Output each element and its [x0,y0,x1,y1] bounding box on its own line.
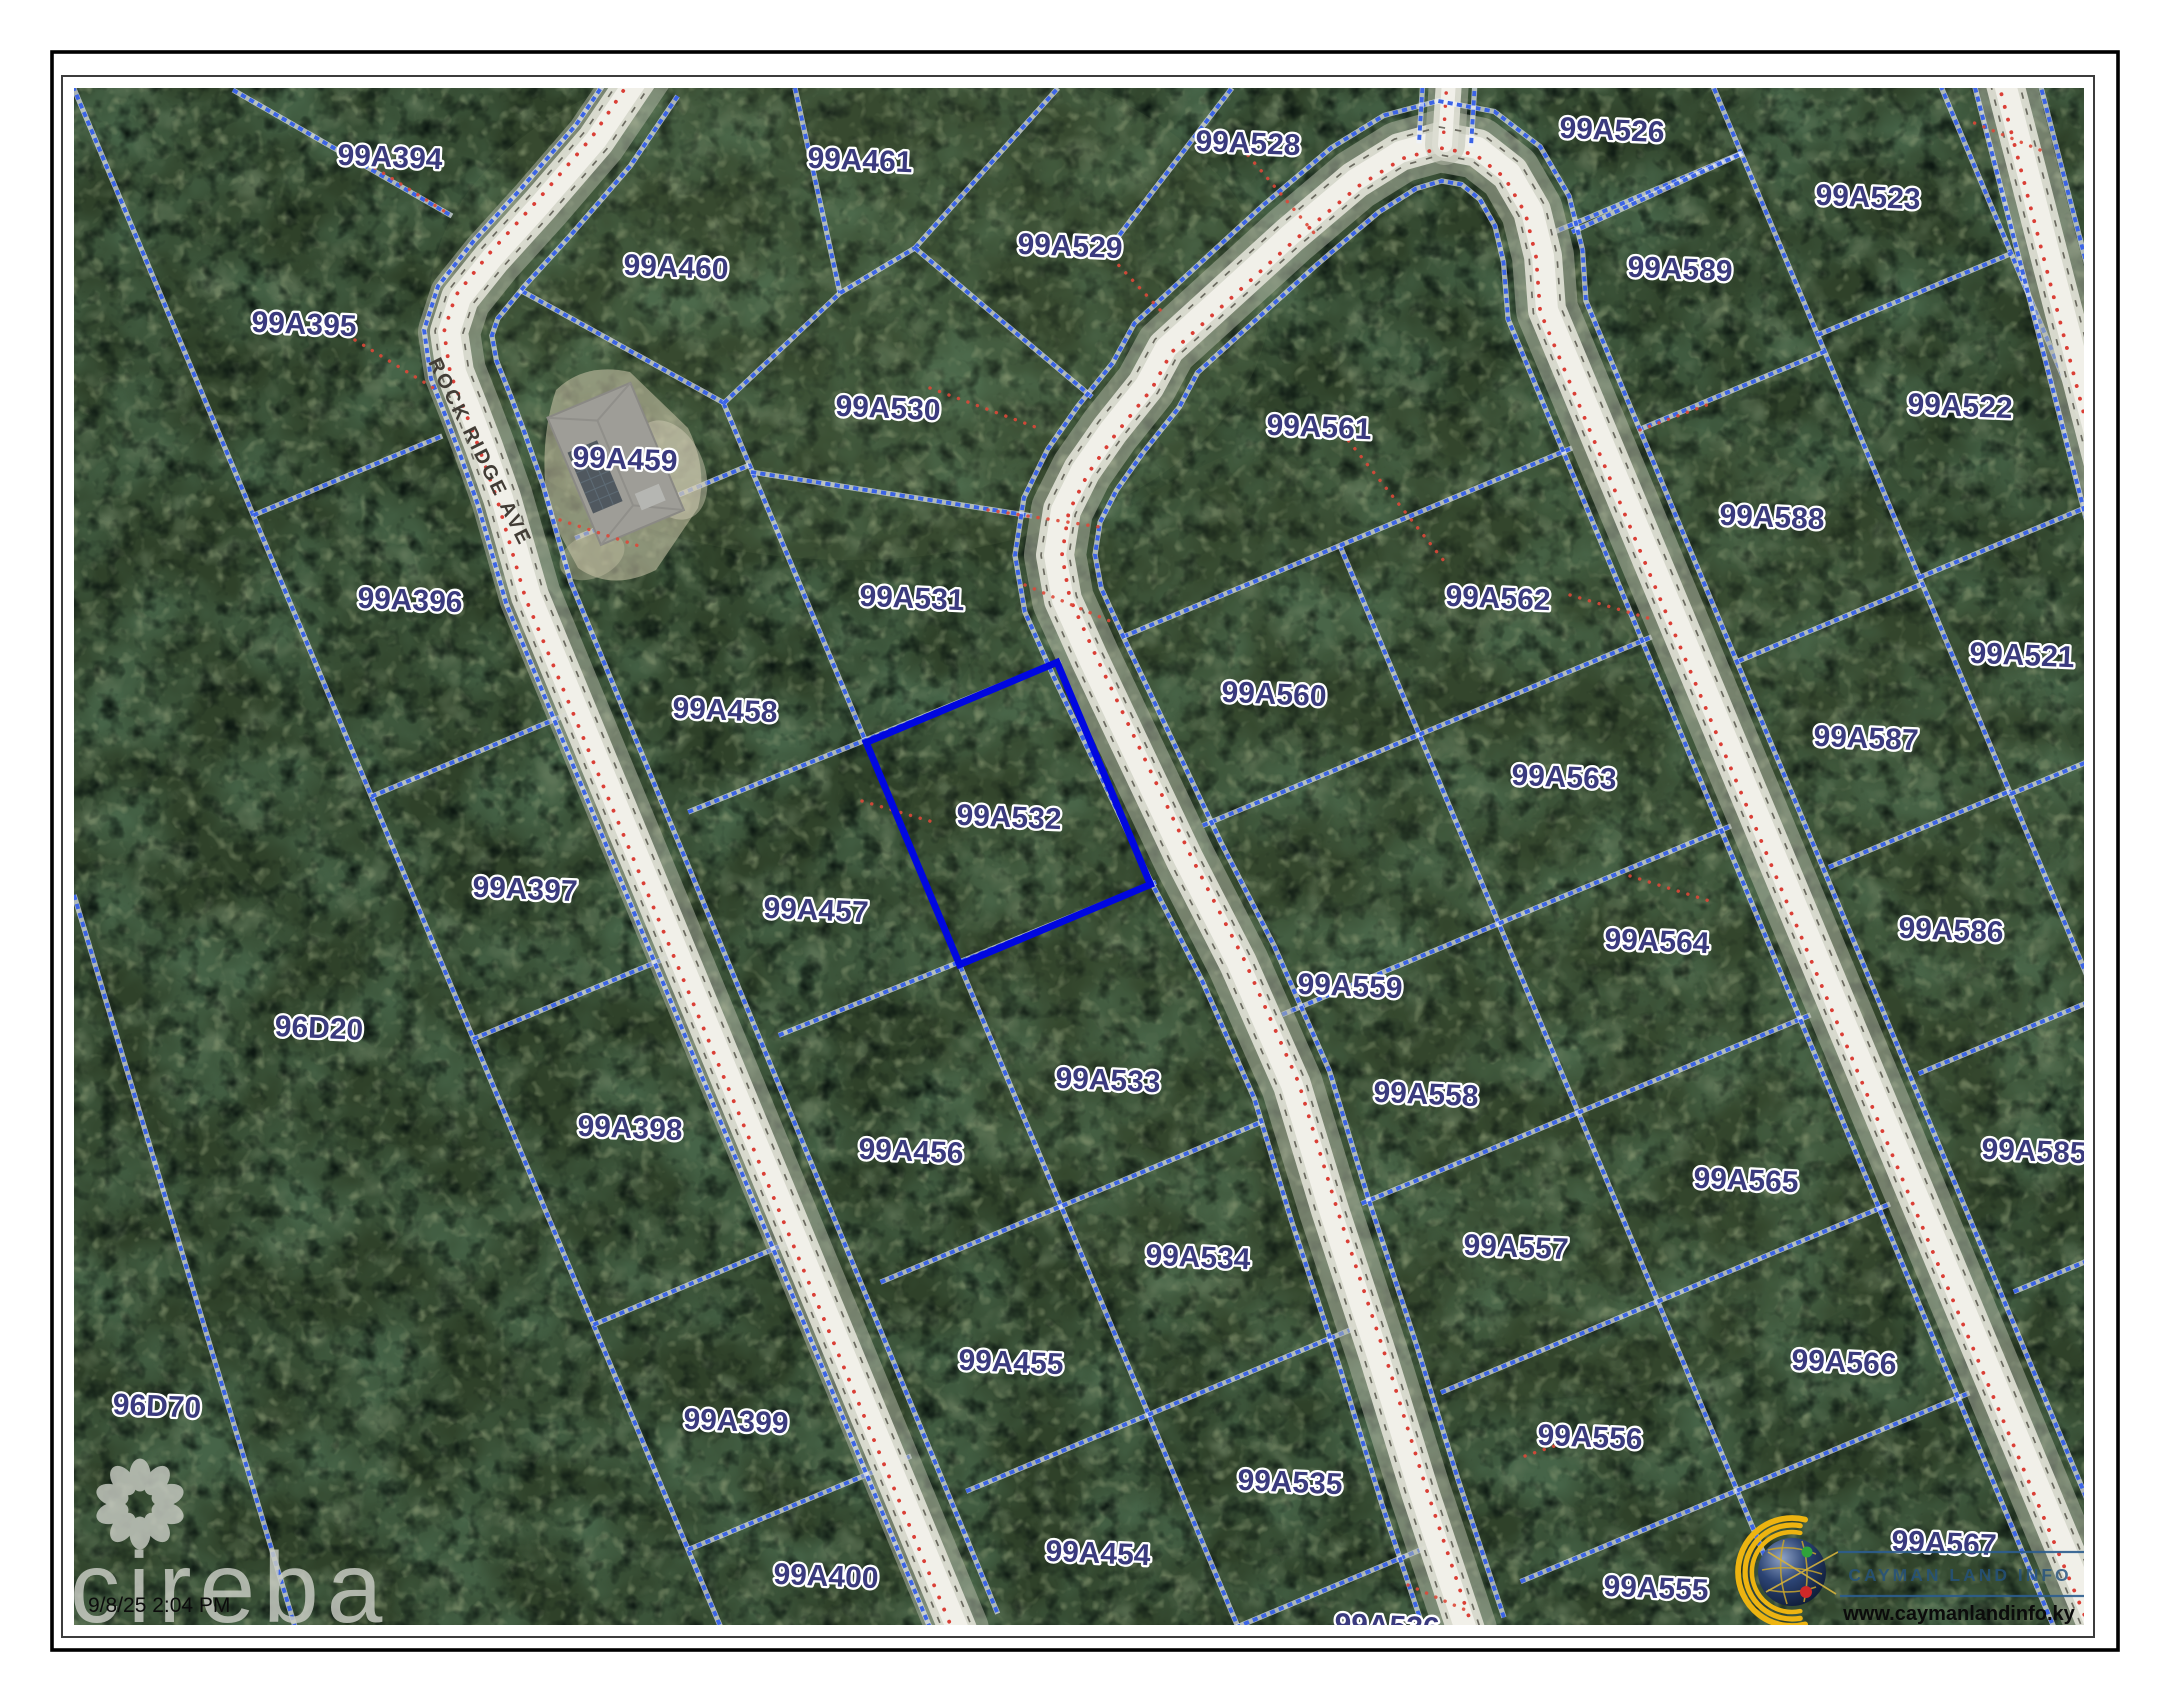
svg-text:99A526: 99A526 [1559,112,1665,150]
svg-text:99A399: 99A399 [683,1403,789,1441]
svg-text:99A557: 99A557 [1463,1229,1569,1267]
svg-text:99A457: 99A457 [763,892,869,930]
svg-text:99A522: 99A522 [1907,388,2013,426]
svg-text:99A567: 99A567 [1891,1525,1997,1563]
svg-text:99A533: 99A533 [1055,1062,1161,1100]
svg-text:99A587: 99A587 [1813,720,1919,758]
svg-text:99A566: 99A566 [1791,1344,1897,1382]
svg-text:99A565: 99A565 [1693,1162,1799,1200]
svg-text:99A456: 99A456 [858,1133,964,1171]
svg-text:99A586: 99A586 [1898,912,2004,950]
svg-text:99A395: 99A395 [251,306,357,344]
svg-text:96D70: 96D70 [112,1388,202,1425]
svg-text:99A561: 99A561 [1266,409,1372,447]
svg-text:99A394: 99A394 [337,139,444,177]
svg-text:96D20: 96D20 [274,1010,364,1047]
svg-text:99A532: 99A532 [956,799,1062,837]
svg-text:99A556: 99A556 [1537,1419,1643,1457]
svg-text:99A558: 99A558 [1373,1076,1479,1114]
svg-text:99A531: 99A531 [859,580,965,618]
svg-text:99A400: 99A400 [773,1558,879,1596]
svg-text:99A396: 99A396 [357,582,463,620]
svg-text:99A529: 99A529 [1017,228,1123,266]
svg-text:99A535: 99A535 [1237,1464,1343,1502]
svg-text:99A455: 99A455 [958,1344,1064,1382]
svg-text:99A559: 99A559 [1297,968,1403,1006]
svg-text:99A459: 99A459 [572,441,678,479]
svg-text:99A585: 99A585 [1981,1133,2087,1171]
svg-text:99A589: 99A589 [1627,251,1733,289]
svg-text:99A562: 99A562 [1445,580,1551,618]
svg-text:99A564: 99A564 [1604,923,1711,961]
svg-text:99A398: 99A398 [577,1110,683,1148]
svg-text:99A461: 99A461 [807,142,913,180]
svg-text:99A458: 99A458 [672,692,778,730]
svg-text:99A530: 99A530 [835,390,941,428]
svg-text:99A521: 99A521 [1969,637,2075,675]
svg-text:99A397: 99A397 [472,871,578,909]
svg-text:99A523: 99A523 [1815,179,1921,217]
svg-text:99A460: 99A460 [623,249,729,287]
svg-text:99A534: 99A534 [1145,1239,1252,1277]
svg-text:9/8/25 2:04 PM: 9/8/25 2:04 PM [88,1594,230,1617]
svg-text:99A588: 99A588 [1719,499,1825,537]
svg-text:99A555: 99A555 [1603,1570,1709,1608]
svg-text:99A560: 99A560 [1221,676,1327,714]
svg-text:99A563: 99A563 [1511,759,1617,797]
svg-text:www.caymanlandinfo.ky: www.caymanlandinfo.ky [1842,1603,2075,1625]
svg-text:99A454: 99A454 [1045,1535,1152,1573]
svg-text:99A528: 99A528 [1195,125,1301,163]
svg-text:CAYMAN LAND INFO: CAYMAN LAND INFO [1848,1565,2071,1585]
